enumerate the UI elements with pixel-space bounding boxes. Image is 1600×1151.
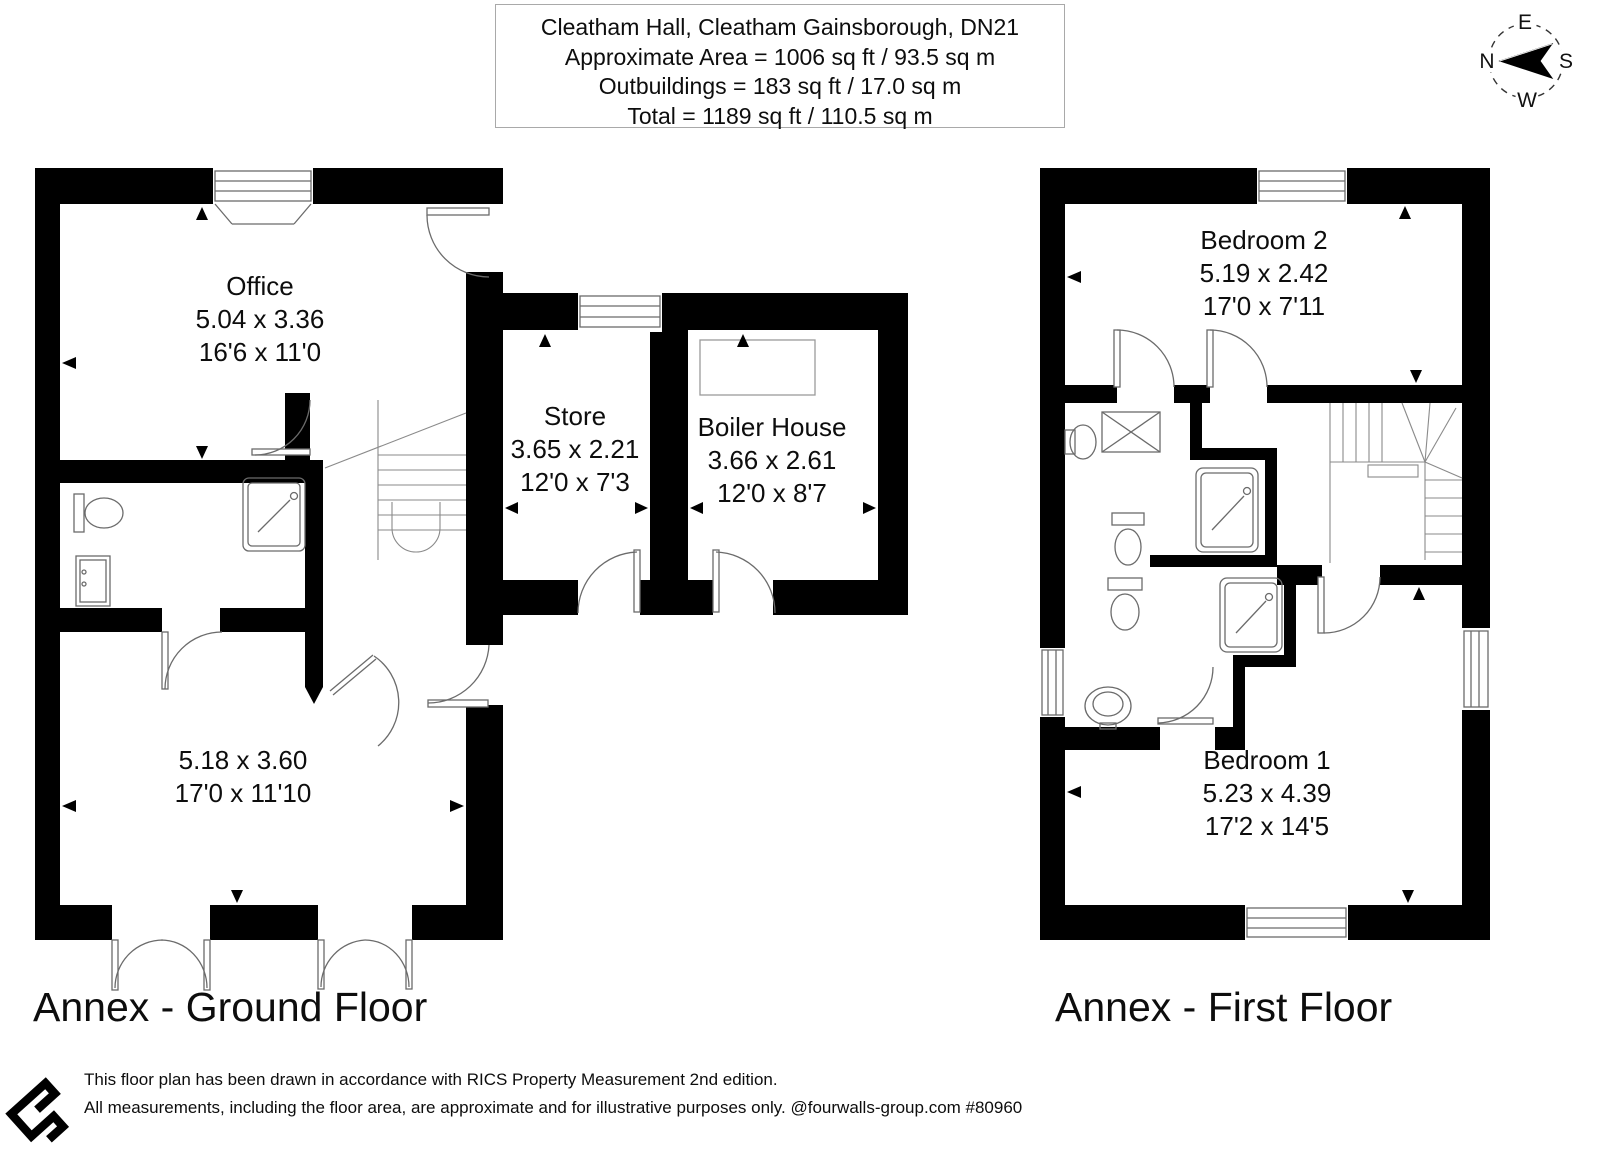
bedroom2-label: Bedroom 2 5.19 x 2.42 17'0 x 7'11 xyxy=(1200,224,1329,323)
room-metric: 5.23 x 4.39 xyxy=(1203,777,1332,810)
compass-s-label: S xyxy=(1559,50,1573,73)
room-name: Office xyxy=(196,270,325,303)
room-imperial: 17'0 x 7'11 xyxy=(1200,290,1329,323)
fourwalls-logo-icon xyxy=(11,1083,75,1146)
boiler-house-label: Boiler House 3.66 x 2.61 12'0 x 8'7 xyxy=(698,411,847,510)
rics-disclaimer: This floor plan has been drawn in accord… xyxy=(84,1070,778,1090)
room-name: Boiler House xyxy=(698,411,847,444)
ground-room-label: 5.18 x 3.60 17'0 x 11'10 xyxy=(175,744,312,810)
approximate-area: Approximate Area = 1006 sq ft / 93.5 sq … xyxy=(496,43,1064,73)
measurements-disclaimer: All measurements, including the floor ar… xyxy=(84,1098,1022,1118)
room-imperial: 12'0 x 8'7 xyxy=(698,477,847,510)
room-metric: 5.19 x 2.42 xyxy=(1200,257,1329,290)
room-metric: 5.18 x 3.60 xyxy=(175,744,312,777)
compass-e-label: E xyxy=(1518,11,1532,34)
first-floor-title: Annex - First Floor xyxy=(1055,984,1392,1031)
room-metric: 5.04 x 3.36 xyxy=(196,303,325,336)
room-imperial: 16'6 x 11'0 xyxy=(196,336,325,369)
room-imperial: 17'2 x 14'5 xyxy=(1203,810,1332,843)
bedroom1-label: Bedroom 1 5.23 x 4.39 17'2 x 14'5 xyxy=(1203,744,1332,843)
outbuildings-area: Outbuildings = 183 sq ft / 17.0 sq m xyxy=(496,72,1064,102)
compass-n-label: N xyxy=(1479,50,1494,73)
ground-floor-title: Annex - Ground Floor xyxy=(33,984,427,1031)
room-imperial: 17'0 x 11'10 xyxy=(175,777,312,810)
floorplan-page: N E S W Cleatham Hall, Cleatham Gainsbor… xyxy=(0,0,1600,1151)
compass-icon: N E S W xyxy=(1475,10,1578,112)
office-label: Office 5.04 x 3.36 16'6 x 11'0 xyxy=(196,270,325,369)
floorplan-canvas: N E S W xyxy=(0,0,1600,1151)
total-area: Total = 1189 sq ft / 110.5 sq m xyxy=(496,102,1064,132)
title-block: Cleatham Hall, Cleatham Gainsborough, DN… xyxy=(495,4,1065,128)
compass-w-label: W xyxy=(1517,89,1537,112)
store-label: Store 3.65 x 2.21 12'0 x 7'3 xyxy=(511,400,640,499)
room-imperial: 12'0 x 7'3 xyxy=(511,466,640,499)
property-address: Cleatham Hall, Cleatham Gainsborough, DN… xyxy=(496,13,1064,43)
room-metric: 3.65 x 2.21 xyxy=(511,433,640,466)
room-metric: 3.66 x 2.61 xyxy=(698,444,847,477)
room-name: Bedroom 2 xyxy=(1200,224,1329,257)
ground-floor-plan xyxy=(35,166,908,990)
room-name: Bedroom 1 xyxy=(1203,744,1332,777)
room-name: Store xyxy=(511,400,640,433)
